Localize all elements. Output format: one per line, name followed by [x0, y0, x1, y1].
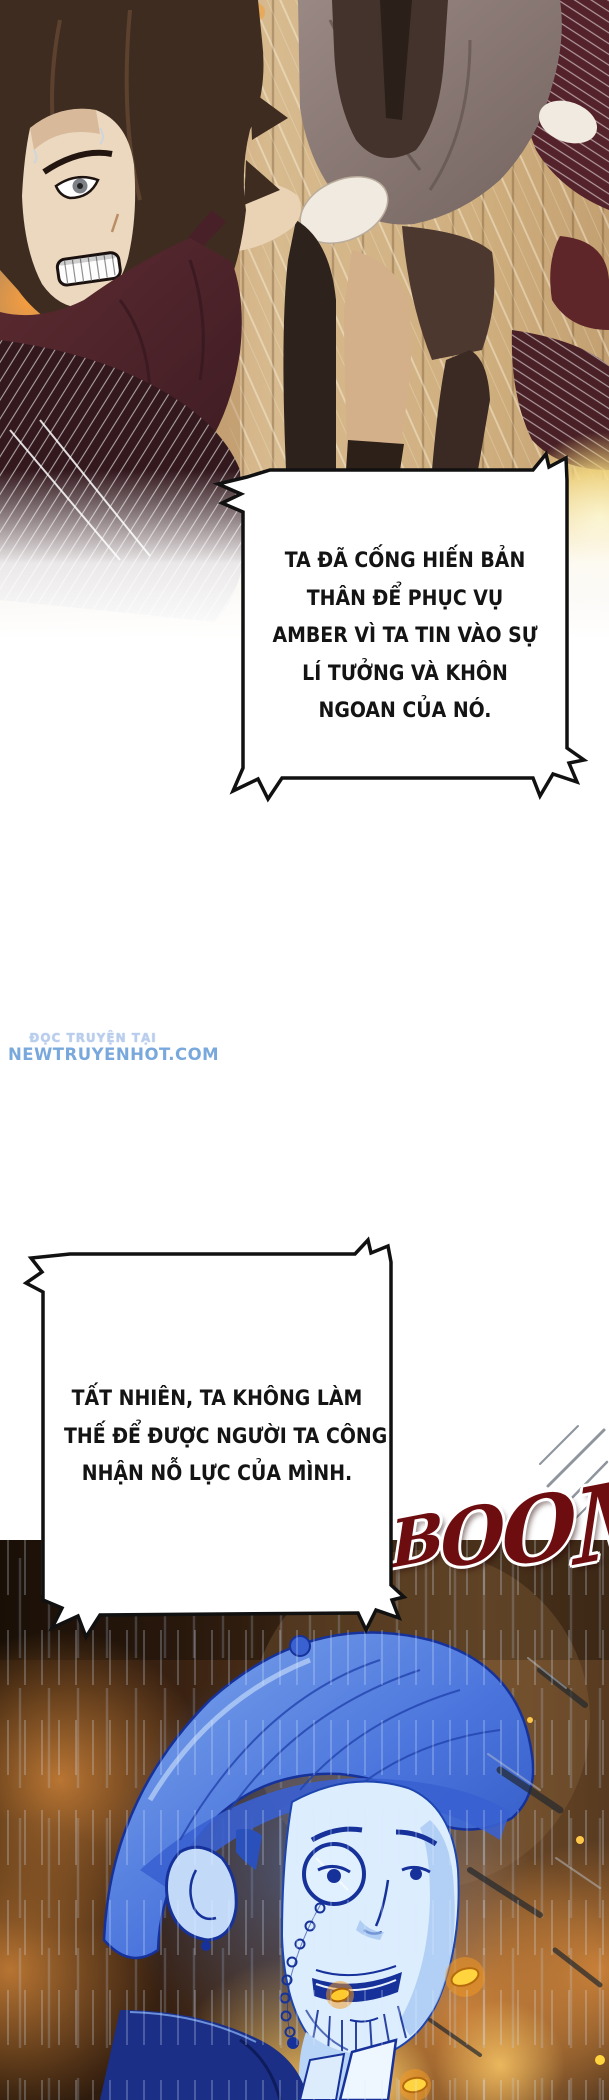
watermark-tagline: ĐỌC TRUYỆN TẠI [8, 1032, 178, 1046]
dialogue-line: THẾ ĐỂ ĐƯỢC NGƯỜI TA CÔNG [64, 1418, 370, 1456]
dialogue-line: TA ĐÃ CỐNG HIẾN BẢN [261, 542, 549, 580]
sfx-letter: M [572, 1460, 609, 1579]
dialogue-line: THÂN ĐỂ PHỤC VỤ [261, 580, 549, 618]
dialogue-line: AMBER VÌ TA TIN VÀO SỰ [261, 617, 549, 655]
site-watermark: ĐỌC TRUYỆN TẠI NEWTRUYENHOT.COM [8, 1032, 178, 1065]
dialogue-line: NGOAN CỦA NÓ. [261, 692, 549, 730]
sfx-letter: O [500, 1481, 574, 1579]
dialogue-line: TẤT NHIÊN, TA KHÔNG LÀM [64, 1380, 370, 1418]
dialogue-line: NHẬN NỖ LỰC CỦA MÌNH. [64, 1455, 370, 1493]
watermark-site-name: NEWTRUYENHOT.COM [8, 1046, 178, 1065]
dialogue-line: LÍ TƯỞNG VÀ KHÔN [261, 655, 549, 693]
sfx-letter: O [439, 1495, 503, 1580]
speech-bubble-1-text: TA ĐÃ CỐNG HIẾN BẢN THÂN ĐỂ PHỤC VỤ AMBE… [261, 542, 549, 730]
speech-bubble-2-text: TẤT NHIÊN, TA KHÔNG LÀM THẾ ĐỂ ĐƯỢC NGƯỜ… [64, 1380, 370, 1493]
comic-page: BOOM TA ĐÃ CỐNG HIẾN BẢN THÂN ĐỂ PHỤC VỤ… [0, 0, 609, 2100]
